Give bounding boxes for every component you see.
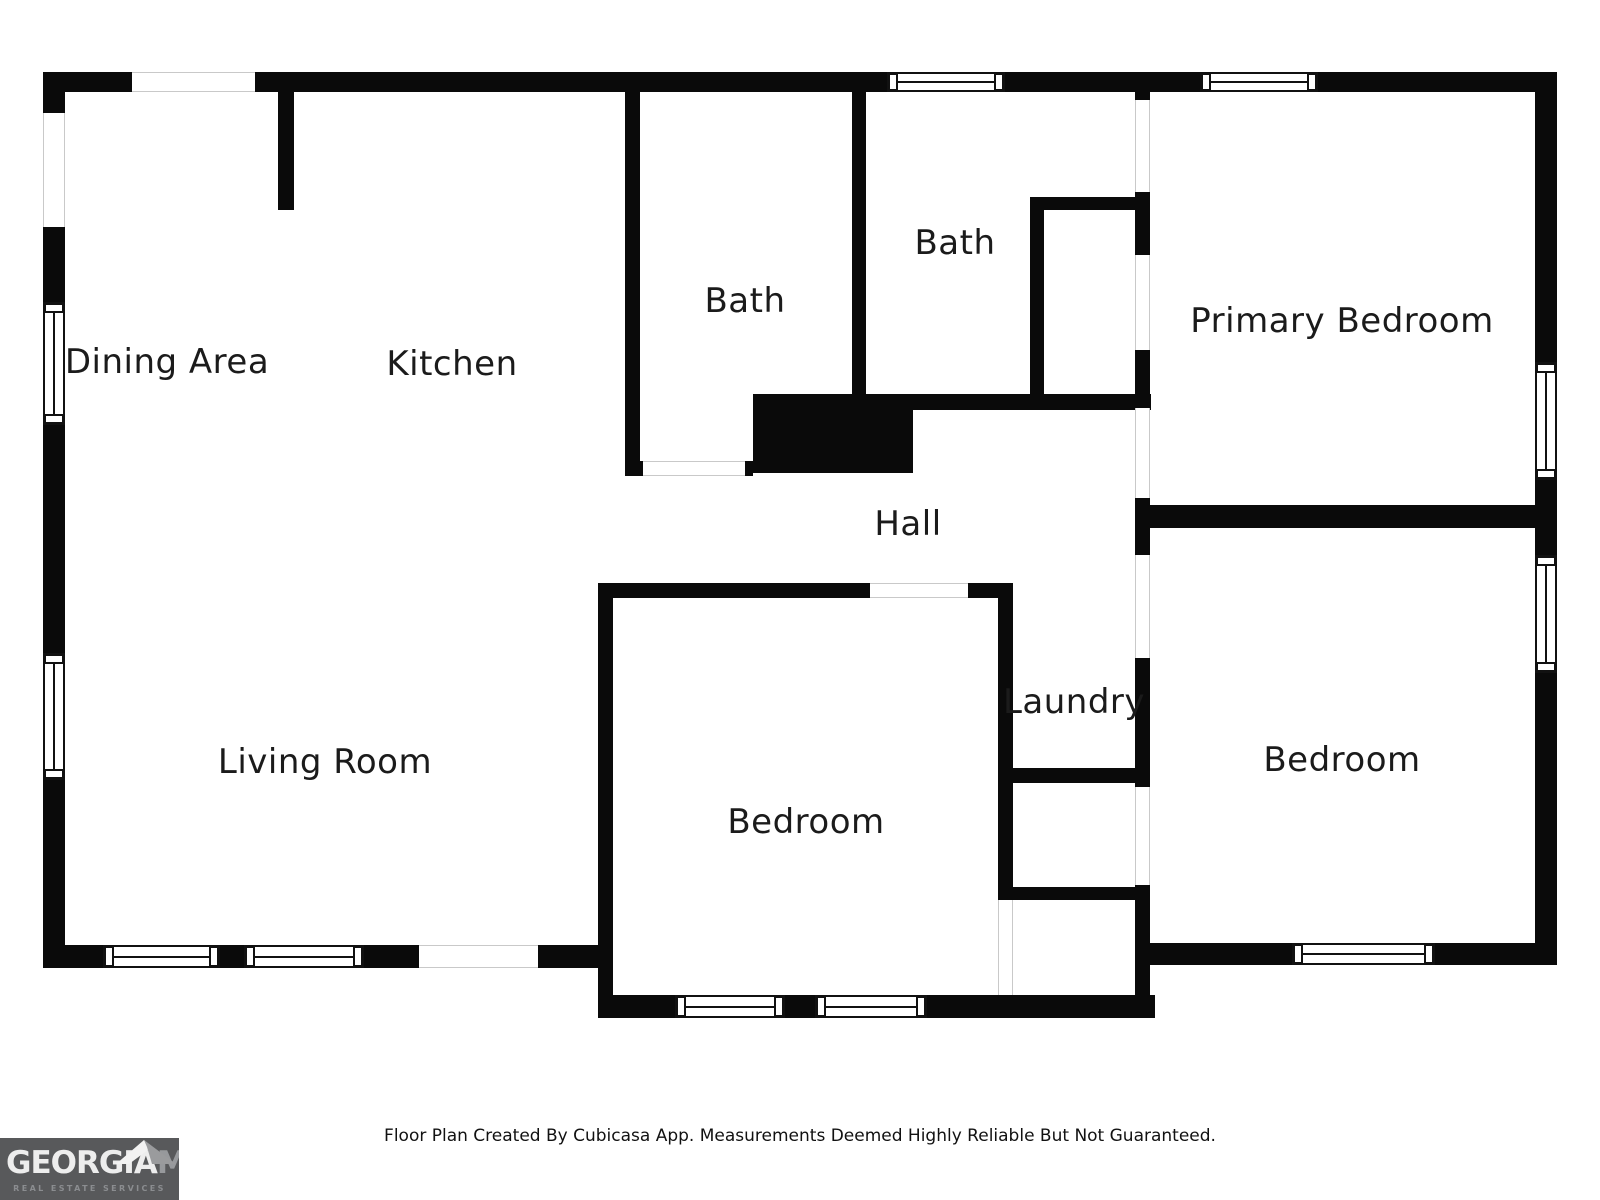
room-label-bedroom: Bedroom: [1263, 740, 1420, 780]
door-opening: [1135, 100, 1150, 192]
wall-segment: [1030, 197, 1044, 410]
wall-segment: [1135, 350, 1150, 408]
window: [43, 653, 65, 780]
wall-segment: [852, 92, 866, 394]
door-opening: [998, 900, 1013, 995]
window-pane-line: [684, 1006, 776, 1008]
wall-segment: [1135, 92, 1150, 100]
window-end-cap: [353, 946, 363, 967]
window-pane-line: [53, 662, 55, 771]
window-pane-line: [1301, 953, 1426, 955]
wall-segment: [1135, 192, 1150, 255]
door-opening: [643, 461, 745, 476]
room-label-kitchen: Kitchen: [386, 344, 517, 384]
window-end-cap: [916, 996, 926, 1017]
window-end-cap: [1424, 944, 1434, 964]
wall-segment: [753, 394, 913, 473]
wall-segment: [278, 92, 294, 210]
wall-segment: [1135, 498, 1150, 555]
door-opening: [419, 945, 538, 968]
window-end-cap: [44, 769, 64, 779]
window: [1535, 555, 1557, 673]
window-end-cap: [994, 73, 1004, 91]
room-label-primary-bedroom: Primary Bedroom: [1190, 301, 1493, 341]
window-end-cap: [44, 414, 64, 424]
window-pane-line: [253, 956, 355, 958]
wall-segment: [1135, 885, 1150, 1018]
wall-segment: [43, 72, 1557, 92]
window-end-cap: [1536, 662, 1556, 672]
window-pane-line: [824, 1006, 918, 1008]
window: [1292, 943, 1435, 965]
window: [103, 945, 220, 968]
wall-segment: [1150, 505, 1535, 528]
room-label-dining-area: Dining Area: [65, 342, 269, 382]
door-opening: [1135, 555, 1150, 658]
room-label-bath: Bath: [704, 281, 785, 321]
window-pane-line: [896, 81, 996, 83]
wall-segment: [625, 92, 640, 476]
window-pane-line: [112, 956, 211, 958]
room-label-living-room: Living Room: [218, 742, 432, 782]
door-opening: [1135, 255, 1150, 350]
window: [244, 945, 364, 968]
wall-segment: [1030, 197, 1150, 210]
window-pane-line: [1545, 564, 1547, 664]
window: [43, 302, 65, 425]
room-label-laundry: Laundry: [1003, 682, 1145, 722]
window-pane-line: [1209, 81, 1309, 83]
wall-segment: [1535, 72, 1557, 965]
logo-tagline: REAL ESTATE SERVICES: [0, 1184, 179, 1193]
roof-icon: [116, 1140, 176, 1164]
window: [675, 995, 785, 1018]
window-pane-line: [53, 311, 55, 416]
wall-segment: [1013, 768, 1150, 783]
room-label-bedroom: Bedroom: [727, 802, 884, 842]
window-end-cap: [774, 996, 784, 1017]
window-end-cap: [1307, 73, 1317, 91]
window-pane-line: [1545, 371, 1547, 471]
georgia-mls-logo: GEORGIAMLS REAL ESTATE SERVICES: [0, 1138, 179, 1200]
room-label-hall: Hall: [874, 504, 941, 544]
door-opening: [870, 583, 968, 598]
window: [887, 72, 1005, 92]
window: [815, 995, 927, 1018]
door-opening: [1135, 408, 1150, 498]
floor-plan: Dining AreaKitchenBathBathPrimary Bedroo…: [0, 0, 1600, 1200]
window-end-cap: [1536, 469, 1556, 479]
window-end-cap: [209, 946, 219, 967]
window: [1200, 72, 1318, 92]
door-opening: [43, 113, 65, 227]
room-label-bath: Bath: [914, 223, 995, 263]
disclaimer-text: Floor Plan Created By Cubicasa App. Meas…: [384, 1126, 1216, 1146]
wall-segment: [998, 887, 1150, 900]
window: [1535, 362, 1557, 480]
door-opening: [1135, 787, 1150, 885]
roof-right-slope: [144, 1140, 176, 1164]
wall-segment: [598, 583, 613, 1018]
door-opening: [132, 72, 255, 92]
